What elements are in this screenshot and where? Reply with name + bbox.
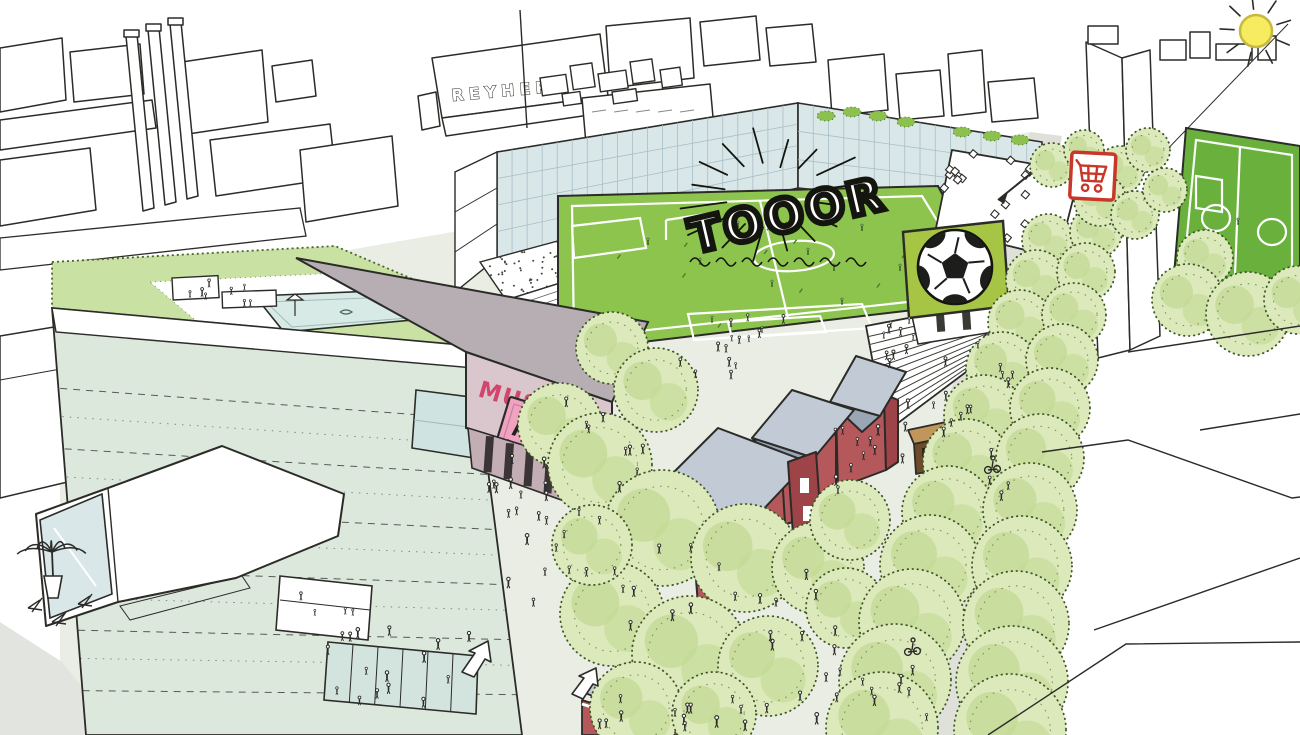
tree — [1143, 168, 1187, 212]
shopping-cart-icon — [1070, 152, 1116, 200]
tree — [810, 480, 890, 560]
tree — [1126, 128, 1170, 172]
illustration-stage: REYHER TOOOR MUSIC HALL PRINCE — [0, 0, 1300, 735]
urban-masterplan-sketch: REYHER TOOOR MUSIC HALL PRINCE — [0, 0, 1300, 735]
tree — [552, 505, 632, 585]
tree — [614, 348, 698, 432]
residential-building-left — [36, 308, 522, 735]
